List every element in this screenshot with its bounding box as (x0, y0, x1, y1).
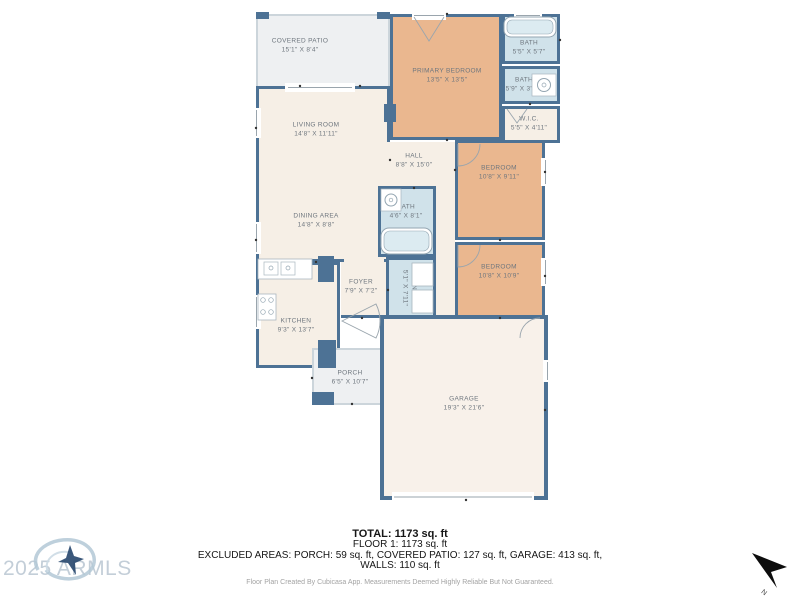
kitchen-counter-icon (258, 259, 312, 279)
walls-area-text: WALLS: 110 sq. ft (0, 561, 800, 572)
plan-details-overlay (0, 0, 800, 600)
disclaimer-text: Floor Plan Created By Cubicasa App. Meas… (0, 579, 800, 586)
door-arcs (342, 17, 540, 338)
stove-icon (258, 294, 276, 320)
measurement-dots (255, 13, 561, 501)
bathtub-icon (504, 17, 556, 37)
sink-icon (532, 74, 556, 96)
sink-icon (381, 189, 401, 211)
bathtub-icon (381, 228, 432, 254)
garage-door (392, 492, 534, 502)
area-summary: TOTAL: 1173 sq. ft FLOOR 1: 1173 sq. ft … (0, 528, 800, 586)
washer-dryer-icon (412, 263, 433, 313)
wall-stubs (256, 12, 396, 405)
floor1-area-text: FLOOR 1: 1173 sq. ft (0, 540, 800, 551)
floor-plan: COVERED PATIO 15'1" X 8'4" LIVING ROOM 1… (0, 0, 800, 600)
window-markers (252, 11, 552, 382)
